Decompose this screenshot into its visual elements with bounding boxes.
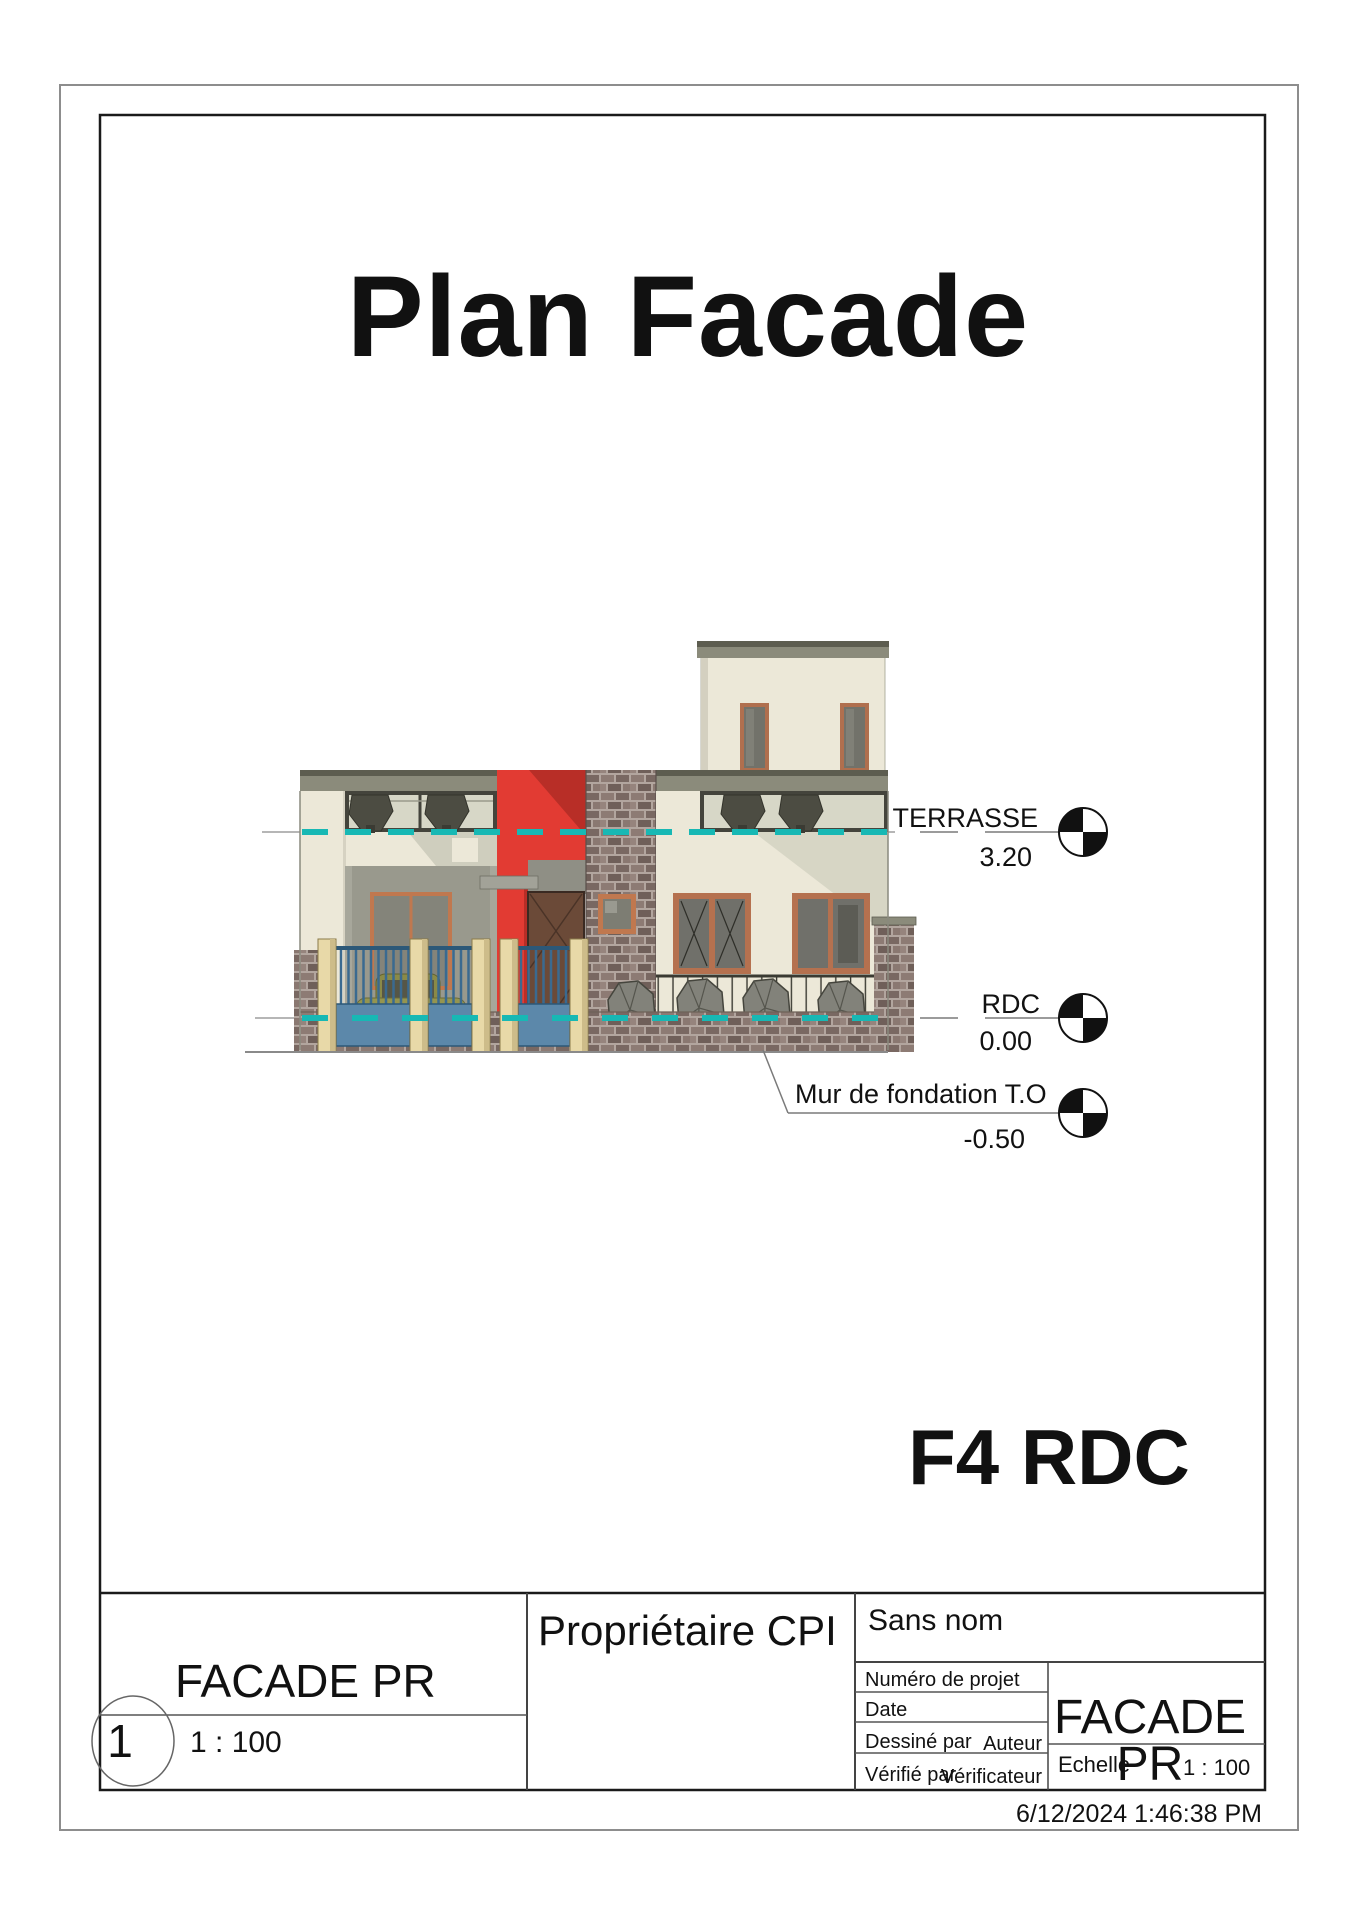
viewport-title: FACADE PR — [175, 1655, 436, 1707]
casement-window — [673, 893, 751, 974]
sheet-title: Plan Facade — [347, 253, 1029, 381]
tower-window — [840, 703, 869, 772]
viewport-number-circle — [92, 1696, 174, 1786]
print-timestamp: 6/12/2024 1:46:38 PM — [1016, 1800, 1262, 1828]
viewport-scale: 1 : 100 — [190, 1726, 282, 1759]
scale-label: Echelle — [1058, 1752, 1130, 1777]
field-value: Auteur — [983, 1733, 1042, 1755]
level-name: Mur de fondation T.O — [795, 1079, 1047, 1109]
pillar-small-window — [598, 894, 636, 934]
garage-clerestory-window — [345, 791, 497, 833]
sheet-canvas: Plan Facade — [0, 0, 1358, 1920]
fence-post — [472, 939, 490, 1052]
fence-post — [318, 939, 336, 1052]
level-annotation-terrasse: TERRASSE 3.20 — [892, 803, 1107, 872]
tower-block — [697, 641, 889, 772]
field-value: Vérificateur — [941, 1766, 1042, 1788]
front-fence — [318, 939, 588, 1052]
level-datum-icon — [1059, 1089, 1107, 1137]
field-label: Dessiné par — [865, 1731, 972, 1753]
tower-window — [740, 703, 769, 772]
fence-post — [410, 939, 428, 1052]
level-annotation-rdc: RDC 0.00 — [920, 989, 1107, 1056]
project-field-row: Date — [865, 1699, 907, 1721]
viewport-title-cell: 1 FACADE PR 1 : 100 — [92, 1655, 436, 1786]
level-datum-icon — [1059, 808, 1107, 856]
terrace-clerestory-window — [700, 791, 888, 833]
owner-name: Propriétaire CPI — [538, 1607, 837, 1654]
level-name: TERRASSE — [892, 803, 1038, 833]
viewport-number: 1 — [107, 1715, 133, 1767]
fence-panel — [336, 946, 410, 1046]
field-label: Date — [865, 1699, 907, 1721]
field-label: Numéro de projet — [865, 1669, 1020, 1691]
level-datum-icon — [1059, 994, 1107, 1042]
level-elevation: -0.50 — [963, 1124, 1025, 1154]
level-name: RDC — [982, 989, 1041, 1019]
project-name: Sans nom — [868, 1604, 1003, 1637]
project-field-row: Numéro de projet — [865, 1669, 1020, 1691]
drawing-label: F4 RDC — [908, 1413, 1190, 1501]
fence-panel — [428, 946, 472, 1046]
sheet-name-cell: FACADE PR Echelle 1 : 100 — [1054, 1691, 1250, 1791]
project-field-row: Vérifié par Vérificateur — [865, 1764, 1042, 1788]
level-elevation: 0.00 — [979, 1026, 1032, 1056]
slider-window — [792, 893, 870, 974]
fence-post — [570, 939, 588, 1052]
fence-gate — [518, 946, 570, 1046]
sheet-name-line1: FACADE — [1054, 1691, 1246, 1744]
drawing-sheet: Plan Facade — [0, 0, 1358, 1920]
project-field-row: Dessiné par Auteur — [865, 1731, 1042, 1755]
facade-elevation-drawing — [245, 641, 916, 1052]
title-block: 1 FACADE PR 1 : 100 Propriétaire CPI San… — [92, 1593, 1265, 1791]
fence-post — [500, 939, 518, 1052]
level-elevation: 3.20 — [979, 842, 1032, 872]
level-annotation-fondation: Mur de fondation T.O -0.50 — [763, 1050, 1107, 1154]
scale-value: 1 : 100 — [1183, 1755, 1250, 1780]
